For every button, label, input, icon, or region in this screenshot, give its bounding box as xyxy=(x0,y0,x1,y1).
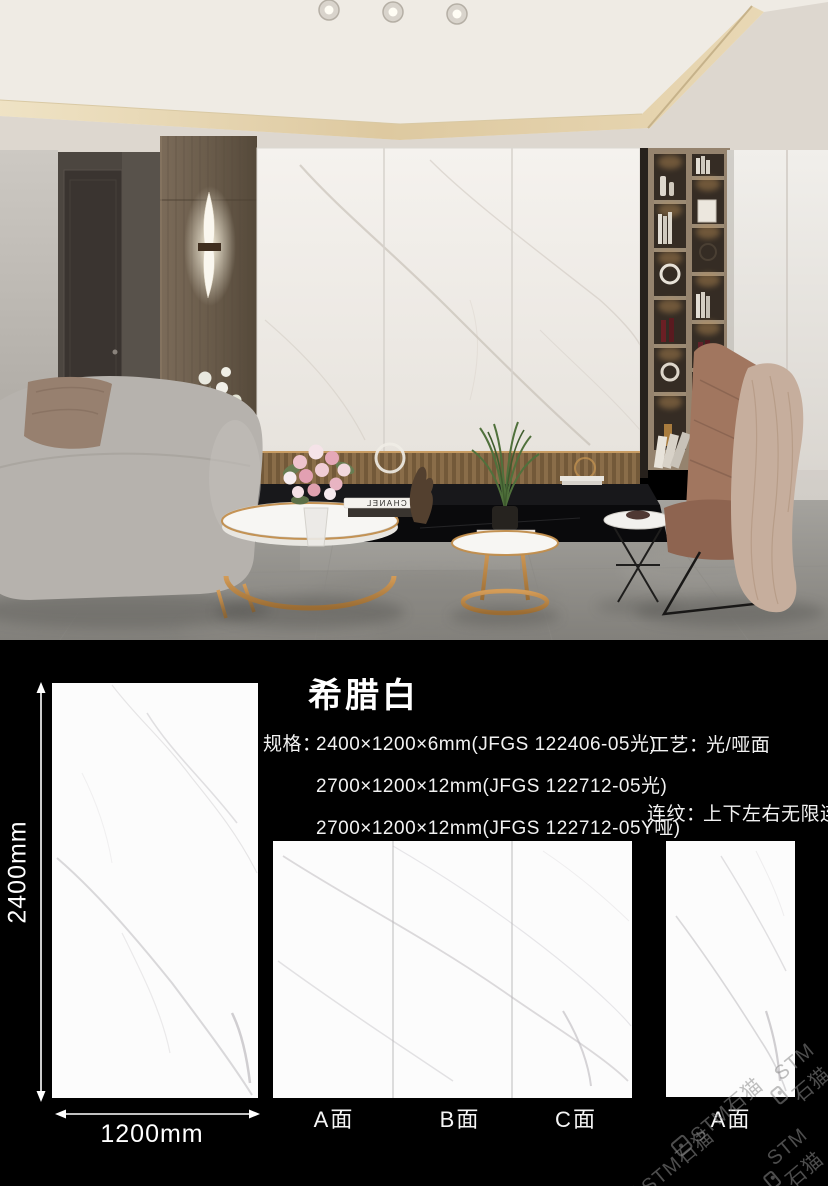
spec-label: 规格： xyxy=(263,729,322,756)
height-dimension-label: 2400mm xyxy=(4,820,33,923)
watermark: STM石猫 xyxy=(751,1120,828,1186)
living-room-photo: CHANEL xyxy=(0,0,828,640)
watermark: STM石猫 xyxy=(666,1070,768,1162)
chair-blanket xyxy=(731,363,803,612)
marble-veins xyxy=(666,841,795,1097)
stm-logo-icon xyxy=(769,1085,789,1105)
marble-feature-wall xyxy=(257,148,640,454)
spec-line-2: 2700×1200×12mm(JFGS 122712-05光) xyxy=(316,771,667,798)
ceiling xyxy=(0,0,828,172)
arrow-head-down xyxy=(37,1091,46,1102)
marble-veins xyxy=(273,841,632,1098)
watermark-text: STM石猫 xyxy=(763,1120,828,1186)
watermark-text: STM石猫 xyxy=(634,1121,719,1186)
stm-logo-icon xyxy=(762,1170,782,1186)
room-scene: CHANEL xyxy=(0,0,828,640)
pattern-label: 连纹： xyxy=(647,799,706,826)
watermark: STM石猫 xyxy=(758,1035,828,1118)
pattern-value: 上下左右无限连纹 xyxy=(703,799,828,826)
process-value: 光/哑面 xyxy=(706,730,770,757)
watermark-text: STM石猫 xyxy=(683,1070,768,1148)
arrow-head-right xyxy=(249,1110,260,1119)
tile-poster-page: CHANEL xyxy=(0,0,828,1186)
stm-logo-icon xyxy=(670,1134,694,1158)
watermark: STM石猫 xyxy=(617,1121,719,1186)
panel-label-single-a: A面 xyxy=(711,1102,752,1134)
sample-tile-large xyxy=(52,683,258,1098)
width-dimension-label: 1200mm xyxy=(100,1120,203,1149)
arrow-head-left xyxy=(55,1110,66,1119)
panel-group-abc xyxy=(273,841,632,1098)
panel-label-b: B面 xyxy=(440,1102,481,1134)
panel-label-c: C面 xyxy=(555,1102,597,1134)
spec-line-1: 2400×1200×6mm(JFGS 122406-05光) xyxy=(316,729,656,756)
panel-label-a: A面 xyxy=(314,1102,355,1134)
spec-line-3: 2700×1200×12mm(JFGS 122712-05Y哑) xyxy=(316,813,681,840)
wall-sconce-light xyxy=(184,186,236,306)
dimension-annotations xyxy=(0,640,828,1186)
marble-veins xyxy=(52,683,258,1098)
book-spine-text: CHANEL xyxy=(365,499,406,508)
sample-tile-single xyxy=(666,841,795,1097)
product-title: 希腊白 xyxy=(308,668,419,717)
arrow-head-up xyxy=(37,682,46,693)
watermark-text: STM石猫 xyxy=(770,1035,828,1107)
process-label: 工艺： xyxy=(650,730,709,757)
